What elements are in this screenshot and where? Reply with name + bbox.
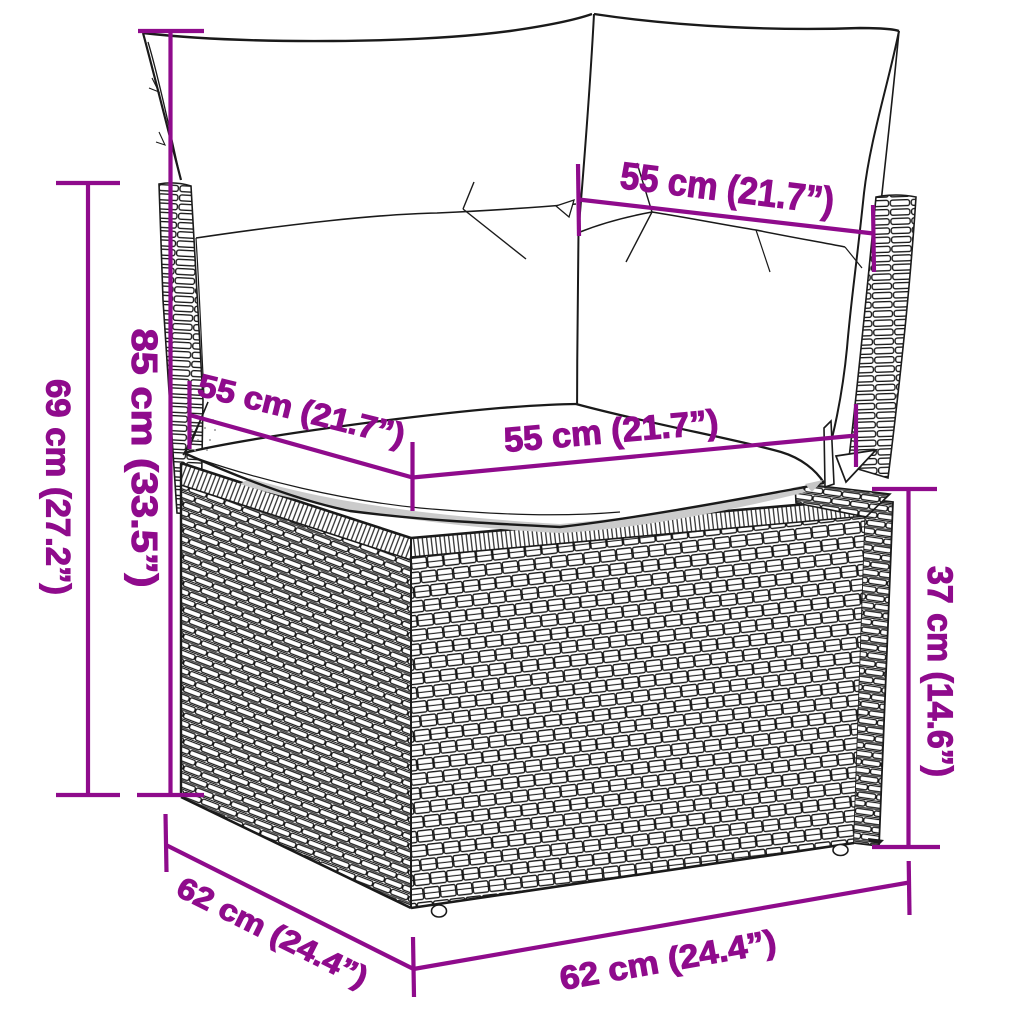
svg-text:37 cm (14.6”): 37 cm (14.6”) [920, 566, 959, 777]
svg-text:85 cm (33.5”): 85 cm (33.5”) [124, 329, 165, 588]
svg-text:69 cm (27.2”): 69 cm (27.2”) [39, 379, 77, 595]
